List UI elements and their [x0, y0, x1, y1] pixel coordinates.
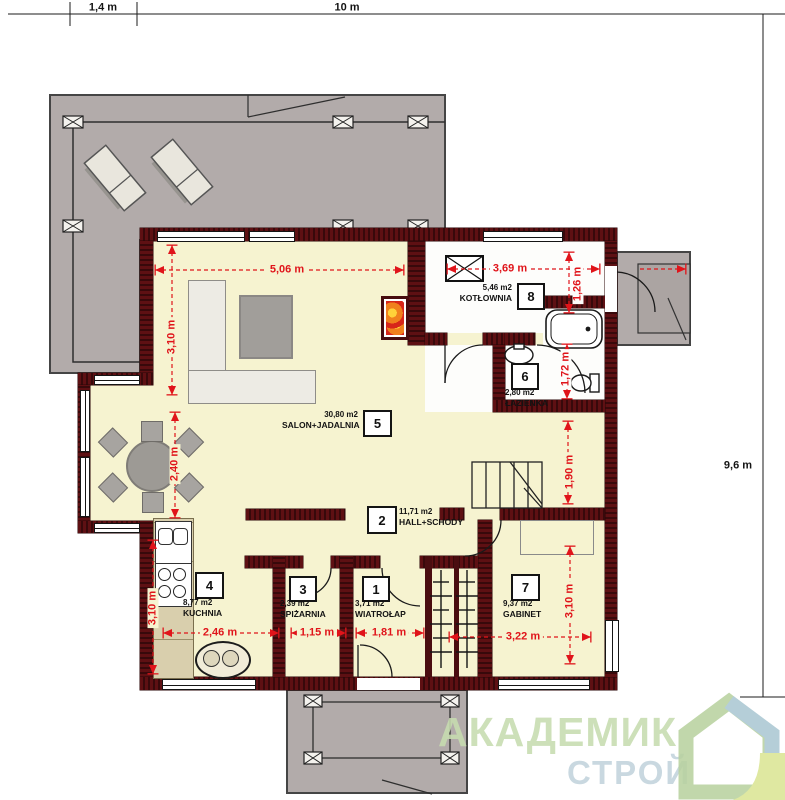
lounge-chair [81, 145, 145, 213]
room-area: 2,39 m2 [280, 599, 326, 609]
wall-left-upper [140, 241, 153, 374]
dim-salon-height: 3,10 m [167, 317, 178, 357]
room-area: 9,37 m2 [503, 599, 541, 609]
wall-vestibule-closet [425, 556, 432, 677]
label-bathroom: 2,80 m2 ŁAZIENKA [505, 388, 548, 409]
room-area: 5,46 m2 [450, 283, 512, 293]
room-number-bath: 6 [511, 363, 539, 390]
dining-chair [141, 421, 163, 442]
dim-boiler-width: 3,69 m [490, 264, 530, 275]
fireplace [381, 296, 409, 340]
wall-office-top-right [500, 508, 605, 520]
dining-chair [142, 492, 164, 513]
lounge-chair [148, 139, 212, 207]
window-kitchen [162, 679, 256, 690]
island-stool [222, 650, 239, 667]
room-name: SALON+JADALNIA [282, 420, 358, 431]
door-side-entry [617, 272, 655, 312]
dim-hall-height: 1,90 m [565, 452, 576, 492]
salon-corner-sofa-horizontal [188, 370, 316, 404]
wall-closet-divider [454, 556, 459, 677]
room-area: 11,71 m2 [399, 507, 463, 517]
fireplace-flame-icon [386, 301, 404, 335]
label-hall: 11,71 m2 HALL+SCHODY [399, 507, 463, 528]
dim-label-total-height: 9,6 m [724, 461, 752, 472]
room-name: ŁAZIENKA [505, 398, 548, 409]
room-name: GABINET [503, 609, 541, 620]
label-office: 9,37 m2 GABINET [503, 599, 541, 620]
wall-boiler-bottom-mid [483, 333, 505, 345]
dim-pantry-width: 1,15 m [297, 628, 337, 639]
opening-entry-door [357, 678, 420, 690]
dim-vestibule-width: 1,81 m [369, 628, 409, 639]
wall-office-left [478, 520, 492, 677]
label-boiler-room: 5,46 m2 KOTŁOWNIA [450, 283, 512, 304]
dim-label-left-offset: 1,4 m [89, 3, 117, 14]
wall-bath-top [505, 333, 535, 345]
sink-basin [173, 528, 188, 545]
room-area: 3,71 m2 [355, 599, 406, 609]
sink-basin [158, 528, 173, 545]
stove-burner [173, 585, 186, 598]
side-entry-steps [617, 252, 690, 345]
floor-bath-niche [543, 308, 605, 345]
dim-office-width: 3,22 m [503, 632, 543, 643]
floor-corridor [425, 345, 493, 412]
room-area: 30,80 m2 [282, 410, 358, 420]
dim-kitchen-width: 2,46 m [200, 628, 240, 639]
terrace-post [333, 116, 353, 128]
window-bay-2 [80, 457, 90, 517]
window-salon-terrace-1 [157, 231, 245, 242]
dim-kitchen-height: 3,10 m [148, 588, 159, 628]
room-number-office: 7 [511, 574, 540, 601]
dim-bath-height: 1,72 m [561, 349, 572, 389]
room-number-boiler: 8 [517, 283, 545, 310]
window-bay-1 [80, 390, 90, 452]
room-name: SPIŻARNIA [280, 609, 326, 620]
stove-burner [158, 585, 171, 598]
house-logo-icon [686, 702, 785, 800]
watermark-line2: СТРОЙ [567, 756, 691, 789]
wall-salon-boiler [408, 241, 425, 345]
wall-boiler-bottom-left [425, 333, 447, 345]
porch-post [441, 695, 459, 707]
porch-post [304, 695, 322, 707]
terrace-post [63, 220, 83, 232]
window-boiler-room [483, 231, 563, 242]
room-number-salon: 5 [363, 410, 392, 437]
salon-corner-sofa-vertical [188, 280, 226, 374]
window-bay-top [94, 375, 140, 385]
window-bay-bottom [94, 523, 140, 533]
room-number-hall: 2 [367, 506, 397, 534]
watermark-line1: АКАДЕМИК [438, 712, 677, 753]
wall-rooms-top-b [331, 556, 380, 568]
stove-burner [158, 568, 171, 581]
terrace-post [408, 116, 428, 128]
room-number-kitchen: 4 [195, 572, 224, 599]
room-name: KOTŁOWNIA [450, 293, 512, 304]
porch-post [304, 752, 322, 764]
salon-rug [239, 295, 293, 359]
wall-pantry-vestibule [340, 556, 353, 677]
opening-side-door [605, 266, 617, 312]
dim-boiler-height: 1,26 m [573, 264, 584, 304]
wall-hall-half [246, 509, 345, 520]
label-salon: 30,80 m2 SALON+JADALNIA [282, 410, 358, 431]
floor-plan: 1,4 m 10 m 9,6 m 5,06 m 3,69 m 3,10 m 2,… [0, 0, 785, 800]
roof-diagonal [248, 97, 345, 117]
terrace-post [63, 116, 83, 128]
room-area: 8,77 m2 [183, 598, 222, 608]
window-office [498, 679, 590, 690]
dim-dining-depth: 2,40 m [170, 444, 181, 484]
office-sofa [520, 520, 594, 555]
dim-office-height: 3,10 m [565, 581, 576, 621]
label-kitchen: 8,77 m2 KUCHNIA [183, 598, 222, 619]
dim-salon-width: 5,06 m [267, 265, 307, 276]
island-stool [203, 650, 220, 667]
room-name: KUCHNIA [183, 608, 222, 619]
room-name: WIATROŁAP [355, 609, 406, 620]
dim-label-total-width: 10 m [334, 3, 359, 14]
label-pantry: 2,39 m2 SPIŻARNIA [280, 599, 326, 620]
window-salon-terrace-2 [249, 231, 295, 242]
room-area: 2,80 m2 [505, 388, 548, 398]
room-name: HALL+SCHODY [399, 517, 463, 528]
window-office-side [605, 620, 619, 672]
label-vestibule: 3,71 m2 WIATROŁAP [355, 599, 406, 620]
stove-burner [173, 568, 186, 581]
